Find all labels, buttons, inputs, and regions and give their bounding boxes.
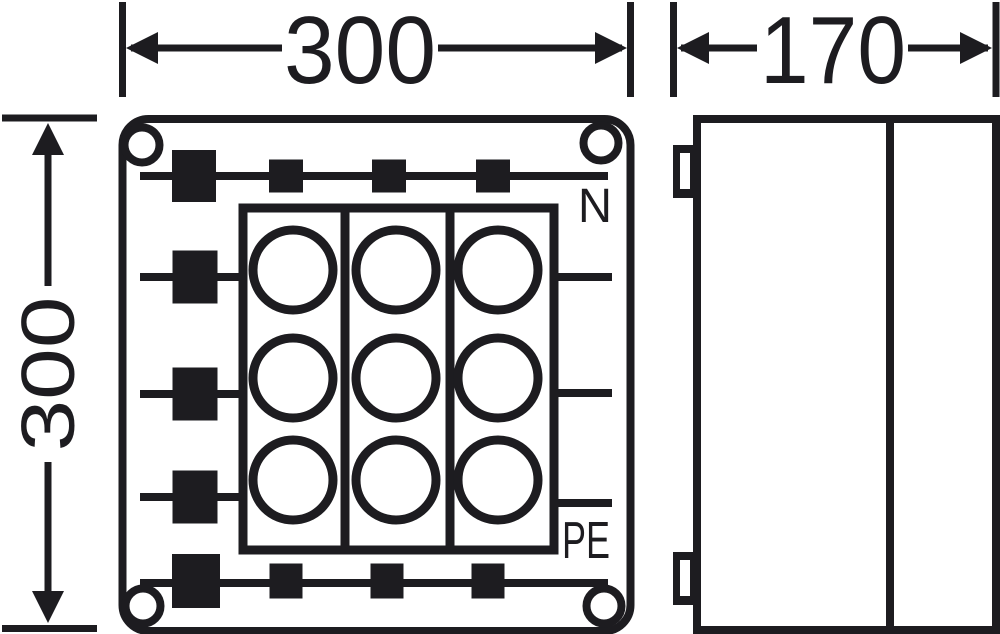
- terminal-block: [172, 554, 220, 608]
- hinge-tab-slot: [680, 560, 690, 596]
- terminal-block: [476, 160, 510, 193]
- dimension-drawing: 300 170 300 N: [0, 0, 1000, 634]
- n-rail-label: N: [578, 180, 612, 233]
- dimension-depth-value: 170: [760, 0, 906, 104]
- dimension-height-value: 300: [6, 297, 90, 452]
- arrowhead-right-icon: [960, 32, 992, 64]
- terminal-block: [173, 368, 218, 421]
- dimension-width: 300: [123, 0, 631, 104]
- hinge-tab-slot: [680, 153, 690, 189]
- terminal-block: [472, 564, 505, 599]
- pe-rail-label: PE: [562, 512, 610, 570]
- front-view: N PE: [123, 119, 631, 631]
- arrowhead-down-icon: [32, 591, 64, 623]
- arrowhead-left-icon: [677, 32, 709, 64]
- terminal-block: [372, 160, 406, 193]
- dimension-depth: 170: [674, 0, 997, 104]
- arrowhead-left-icon: [126, 32, 158, 64]
- terminal-block: [173, 471, 218, 524]
- terminal-block: [371, 564, 404, 599]
- terminal-block: [269, 160, 303, 193]
- dimension-height: 300: [2, 118, 97, 629]
- dimension-width-value: 300: [284, 0, 436, 104]
- terminal-block: [172, 150, 216, 202]
- terminal-block: [173, 251, 218, 304]
- arrowhead-up-icon: [32, 123, 64, 155]
- side-view: [673, 119, 996, 630]
- terminal-block: [270, 564, 303, 599]
- side-outline: [697, 119, 996, 630]
- arrowhead-right-icon: [595, 32, 627, 64]
- enclosure-drawing-svg: 300 170 300 N: [0, 0, 1000, 634]
